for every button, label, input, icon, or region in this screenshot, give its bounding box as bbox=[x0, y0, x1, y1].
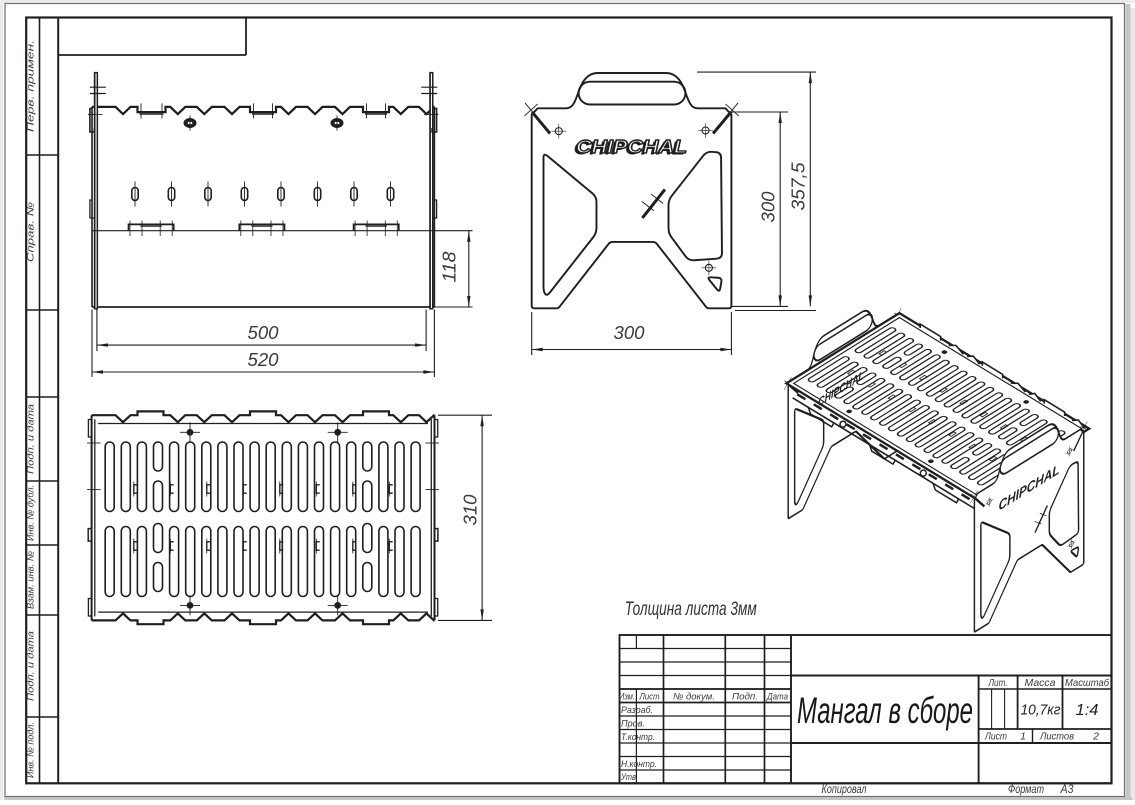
svg-text:Подп. и дата: Подп. и дата bbox=[26, 404, 37, 474]
svg-text:Толщина листа 3мм: Толщина листа 3мм bbox=[625, 599, 757, 620]
svg-text:Справ. №: Справ. № bbox=[26, 202, 37, 262]
svg-text:Лист: Лист bbox=[639, 692, 660, 702]
svg-text:500: 500 bbox=[248, 323, 279, 343]
svg-text:Масштаб: Масштаб bbox=[1065, 677, 1110, 689]
svg-text:Взам. инв. №: Взам. инв. № bbox=[26, 551, 37, 609]
svg-text:118: 118 bbox=[440, 252, 460, 283]
svg-text:Подп.: Подп. bbox=[732, 692, 758, 703]
svg-text:520: 520 bbox=[248, 350, 279, 370]
svg-text:Масса: Масса bbox=[1025, 677, 1056, 689]
svg-text:№ докум.: № докум. bbox=[673, 692, 715, 703]
svg-text:Лист: Лист bbox=[984, 731, 1007, 743]
svg-text:Н.контр.: Н.контр. bbox=[621, 759, 657, 770]
svg-text:Утв.: Утв. bbox=[620, 772, 638, 783]
svg-text:1: 1 bbox=[1020, 731, 1026, 743]
svg-text:Лит.: Лит. bbox=[988, 677, 1008, 689]
svg-text:Перв. примен.: Перв. примен. bbox=[26, 40, 37, 132]
svg-text:1:4: 1:4 bbox=[1076, 702, 1099, 719]
svg-text:Листов: Листов bbox=[1039, 731, 1074, 743]
svg-text:300: 300 bbox=[614, 323, 645, 343]
svg-text:10,7кг: 10,7кг bbox=[1021, 703, 1061, 719]
svg-text:Мангал в сборе: Мангал в сборе bbox=[797, 690, 973, 731]
svg-text:310: 310 bbox=[461, 495, 481, 526]
svg-text:Пров.: Пров. bbox=[621, 719, 645, 730]
svg-text:357,5: 357,5 bbox=[789, 161, 809, 210]
svg-text:Разраб.: Разраб. bbox=[621, 705, 653, 716]
svg-text:2: 2 bbox=[1092, 731, 1099, 743]
svg-text:Копировал: Копировал bbox=[822, 784, 867, 796]
svg-text:Инв. № дубл.: Инв. № дубл. bbox=[26, 485, 37, 541]
svg-text:А3: А3 bbox=[1060, 784, 1074, 796]
svg-text:CHIPCHAL: CHIPCHAL bbox=[576, 136, 687, 157]
svg-text:300: 300 bbox=[759, 192, 779, 223]
svg-text:Формат: Формат bbox=[1008, 784, 1044, 796]
svg-text:Подп. и дата: Подп. и дата bbox=[26, 631, 37, 701]
svg-text:Изм.: Изм. bbox=[619, 692, 635, 702]
svg-text:Т.контр.: Т.контр. bbox=[621, 732, 655, 743]
svg-text:Инв. № подл.: Инв. № подл. bbox=[26, 722, 37, 778]
svg-text:Дата: Дата bbox=[766, 692, 788, 703]
